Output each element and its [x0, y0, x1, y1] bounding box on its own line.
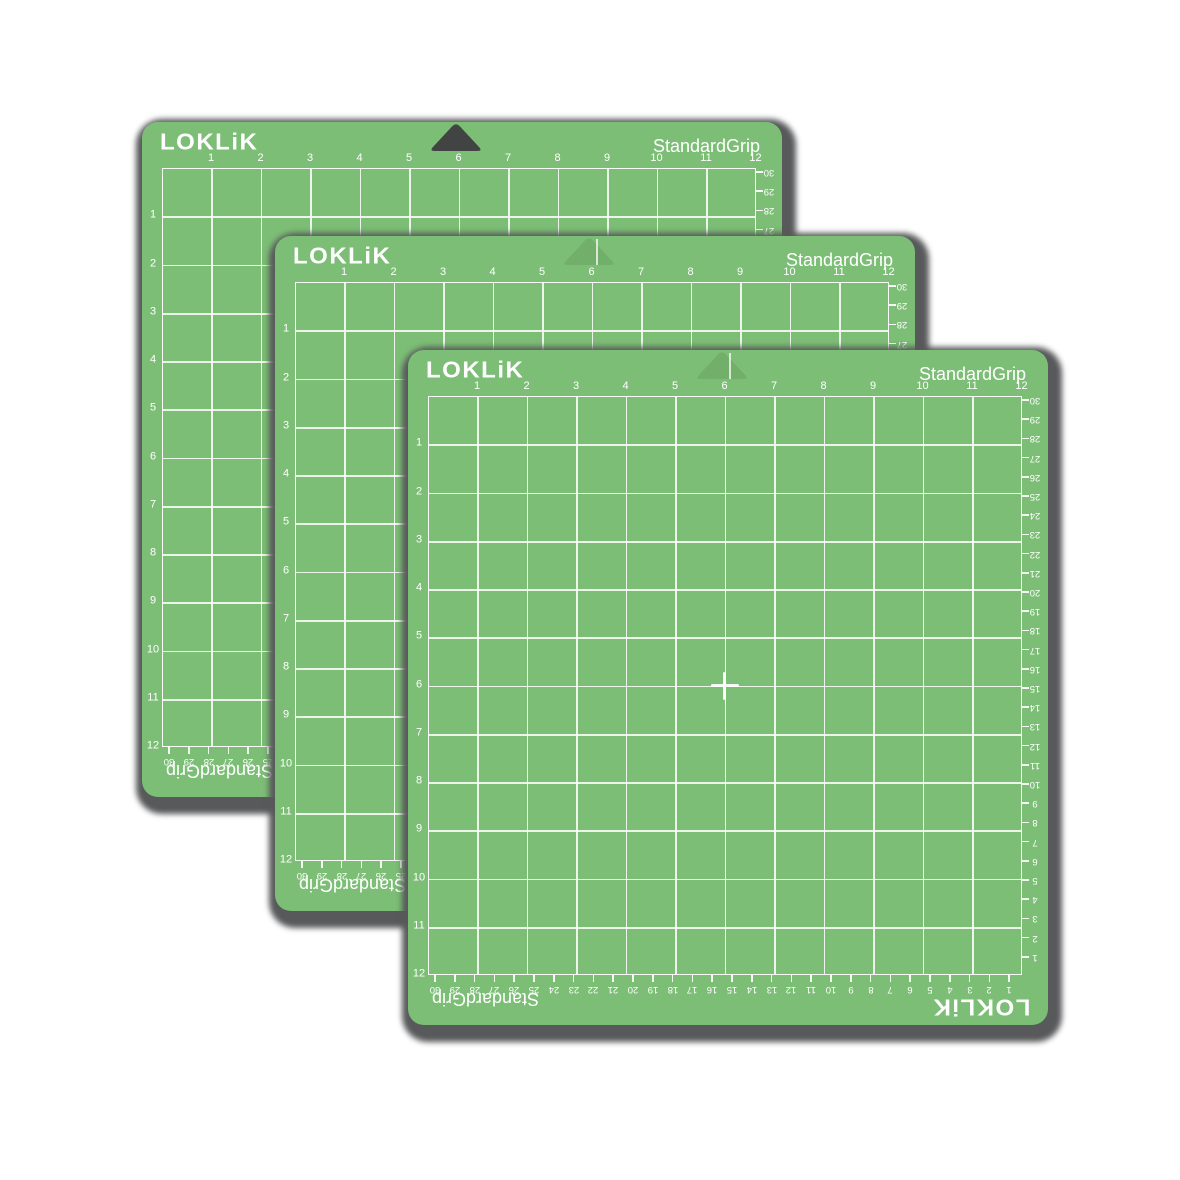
top-ruler-number: 10 — [783, 267, 795, 278]
right-ruler-number: 28 — [1029, 434, 1040, 444]
right-ruler-number: 30 — [763, 167, 774, 177]
bottom-ruler-tick — [454, 975, 456, 982]
bottom-ruler-number: 9 — [848, 984, 853, 994]
left-ruler-number: 2 — [150, 258, 156, 269]
bottom-ruler-tick — [593, 975, 595, 982]
right-ruler-number: 18 — [1029, 626, 1040, 636]
right-ruler-number: 4 — [1032, 894, 1037, 904]
left-ruler-number: 1 — [150, 210, 156, 221]
right-ruler-number: 17 — [1029, 645, 1040, 655]
right-ruler-tick — [1022, 630, 1029, 632]
grip-type-label-mirrored: StandardGrip — [299, 874, 406, 895]
top-ruler-number: 6 — [455, 153, 461, 164]
top-ruler-number: 8 — [554, 153, 560, 164]
bottom-ruler-tick — [929, 975, 931, 982]
right-ruler-number: 24 — [1029, 510, 1040, 520]
bottom-ruler-tick — [228, 747, 230, 754]
right-ruler-tick — [1022, 764, 1029, 766]
bottom-ruler-tick — [890, 975, 892, 982]
top-ruler-number: 3 — [307, 153, 313, 164]
bottom-ruler-tick — [494, 975, 496, 982]
left-ruler-number: 1 — [416, 438, 422, 449]
bottom-ruler-tick — [434, 975, 436, 982]
left-ruler-number: 5 — [150, 403, 156, 414]
right-ruler-tick — [1022, 860, 1029, 862]
grip-type-label-mirrored: StandardGrip — [432, 988, 539, 1009]
right-ruler-number: 26 — [1029, 472, 1040, 482]
top-ruler-number: 9 — [604, 153, 610, 164]
top-ruler-number: 10 — [650, 153, 662, 164]
right-ruler-tick — [1022, 687, 1029, 689]
left-ruler-number: 3 — [416, 534, 422, 545]
right-ruler-tick — [1022, 745, 1029, 747]
left-ruler-number: 11 — [413, 920, 424, 931]
right-ruler-tick — [1022, 918, 1029, 920]
bottom-ruler-tick — [247, 747, 249, 754]
right-ruler-tick — [1022, 572, 1029, 574]
top-ruler-number: 12 — [1015, 381, 1027, 392]
bottom-ruler-tick — [632, 975, 634, 982]
left-ruler-number: 6 — [416, 679, 422, 690]
bottom-ruler-number: 22 — [588, 984, 599, 994]
hanging-notch-cutout-icon — [427, 121, 485, 152]
hanging-notch-cutout-icon — [693, 349, 751, 380]
left-ruler-number: 8 — [416, 775, 422, 786]
bottom-ruler-tick — [791, 975, 793, 982]
top-ruler-number: 12 — [882, 267, 894, 278]
right-ruler-number: 1 — [1032, 952, 1037, 962]
top-ruler-number: 2 — [390, 267, 396, 278]
right-ruler-tick — [1022, 610, 1029, 612]
bottom-ruler-number: 19 — [648, 984, 659, 994]
right-ruler-tick — [756, 171, 763, 173]
bottom-ruler-tick — [652, 975, 654, 982]
right-ruler-tick — [1022, 841, 1029, 843]
top-ruler-number: 12 — [749, 153, 761, 164]
bottom-ruler-tick — [267, 747, 269, 754]
bottom-ruler-tick — [731, 975, 733, 982]
bottom-ruler-tick — [341, 861, 343, 868]
right-ruler-number: 23 — [1029, 530, 1040, 540]
bottom-ruler-number: 12 — [786, 984, 797, 994]
bottom-ruler-tick — [989, 975, 991, 982]
bottom-ruler-tick — [949, 975, 951, 982]
bottom-ruler-tick — [771, 975, 773, 982]
top-ruler-number: 9 — [737, 267, 743, 278]
top-ruler-number: 11 — [700, 153, 711, 164]
grip-type-label-mirrored: StandardGrip — [166, 760, 273, 781]
cutting-mat: LOKLiK StandardGrip 123456789101112 1234… — [408, 350, 1048, 1025]
top-ruler-number: 11 — [833, 267, 844, 278]
right-ruler-number: 19 — [1029, 606, 1040, 616]
right-ruler-tick — [1022, 534, 1029, 536]
grid-line-horizontal — [429, 879, 1021, 881]
top-ruler-number: 3 — [440, 267, 446, 278]
left-ruler-number: 9 — [416, 824, 422, 835]
right-ruler-tick — [1022, 956, 1029, 958]
right-ruler-tick — [1022, 937, 1029, 939]
left-ruler-number: 7 — [150, 499, 156, 510]
right-ruler-number: 8 — [1032, 818, 1037, 828]
left-ruler-number: 2 — [416, 486, 422, 497]
top-ruler-number: 2 — [523, 381, 529, 392]
right-ruler-number: 30 — [1029, 395, 1040, 405]
right-ruler-number: 21 — [1029, 568, 1040, 578]
bottom-ruler-tick — [612, 975, 614, 982]
bottom-ruler-tick — [553, 975, 555, 982]
hanging-notch-cutout-icon — [560, 235, 618, 266]
right-ruler-tick — [1022, 726, 1029, 728]
right-ruler-tick — [1022, 783, 1029, 785]
left-ruler-number: 8 — [150, 547, 156, 558]
right-ruler-number: 29 — [763, 186, 774, 196]
top-ruler-number: 4 — [489, 267, 495, 278]
right-ruler-tick — [1022, 457, 1029, 459]
top-ruler-number: 7 — [771, 381, 777, 392]
right-ruler-number: 30 — [896, 281, 907, 291]
grid-line-horizontal — [163, 216, 755, 218]
top-ruler-number: 8 — [820, 381, 826, 392]
left-ruler-number: 10 — [280, 758, 292, 769]
grid-line-horizontal — [429, 493, 1021, 495]
right-ruler-tick — [756, 229, 763, 231]
right-ruler-number: 3 — [1032, 914, 1037, 924]
bottom-ruler-tick — [969, 975, 971, 982]
bottom-ruler-number: 17 — [687, 984, 698, 994]
left-ruler-number: 10 — [147, 644, 159, 655]
left-ruler-number: 1 — [283, 324, 289, 335]
bottom-ruler-number: 15 — [727, 984, 738, 994]
bottom-ruler-tick — [321, 861, 323, 868]
left-ruler-number: 12 — [147, 740, 159, 751]
top-ruler-number: 3 — [573, 381, 579, 392]
right-ruler-number: 29 — [896, 300, 907, 310]
bottom-ruler-number: 13 — [766, 984, 777, 994]
bottom-ruler-number: 14 — [747, 984, 758, 994]
right-ruler-number: 5 — [1032, 875, 1037, 885]
left-ruler-number: 4 — [416, 582, 422, 593]
bottom-ruler-tick — [474, 975, 476, 982]
bottom-ruler-number: 8 — [868, 984, 873, 994]
right-ruler-number: 16 — [1029, 664, 1040, 674]
right-ruler-tick — [1022, 898, 1029, 900]
right-ruler-tick — [889, 324, 896, 326]
right-ruler-number: 27 — [763, 225, 774, 235]
grid-line-horizontal — [429, 541, 1021, 543]
bottom-ruler-tick — [208, 747, 210, 754]
bottom-ruler-number: 7 — [888, 984, 893, 994]
right-ruler-number: 6 — [1032, 856, 1037, 866]
bottom-ruler-number: 21 — [608, 984, 619, 994]
right-ruler-tick — [889, 304, 896, 306]
bottom-ruler-tick — [870, 975, 872, 982]
right-ruler-tick — [1022, 438, 1029, 440]
bottom-ruler-tick — [830, 975, 832, 982]
right-ruler-tick — [1022, 802, 1029, 804]
bottom-ruler-tick — [533, 975, 535, 982]
bottom-ruler-tick — [188, 747, 190, 754]
left-ruler-number: 11 — [147, 692, 158, 703]
left-ruler-number: 2 — [283, 372, 289, 383]
top-ruler-number: 5 — [539, 267, 545, 278]
right-ruler-tick — [1022, 879, 1029, 881]
left-ruler-number: 10 — [413, 872, 425, 883]
right-ruler-tick — [1022, 668, 1029, 670]
right-ruler-number: 2 — [1032, 933, 1037, 943]
top-ruler-number: 4 — [622, 381, 628, 392]
top-ruler-number: 5 — [672, 381, 678, 392]
brand-logo-mirrored: LOKLiK — [932, 993, 1030, 1020]
right-ruler-number: 20 — [1029, 587, 1040, 597]
top-ruler-number: 11 — [966, 381, 977, 392]
bottom-ruler-number: 11 — [806, 984, 816, 994]
grid-line-horizontal — [429, 589, 1021, 591]
left-ruler-number: 3 — [150, 306, 156, 317]
bottom-ruler-tick — [301, 861, 303, 868]
grid-line-horizontal — [429, 782, 1021, 784]
right-ruler-number: 13 — [1029, 722, 1040, 732]
top-ruler-number: 7 — [638, 267, 644, 278]
bottom-ruler-tick — [810, 975, 812, 982]
grid-line-horizontal — [296, 330, 888, 332]
right-ruler-number: 22 — [1029, 549, 1040, 559]
grid-line-horizontal — [429, 927, 1021, 929]
right-ruler-number: 9 — [1032, 798, 1037, 808]
left-ruler-number: 4 — [150, 354, 156, 365]
bottom-ruler-tick — [361, 861, 363, 868]
top-ruler-number: 6 — [721, 381, 727, 392]
left-ruler-number: 7 — [416, 727, 422, 738]
top-ruler-number: 7 — [505, 153, 511, 164]
right-ruler-tick — [1022, 476, 1029, 478]
bottom-ruler-tick — [711, 975, 713, 982]
left-ruler-number: 6 — [150, 451, 156, 462]
right-ruler-number: 28 — [896, 320, 907, 330]
right-ruler-tick — [1022, 822, 1029, 824]
left-ruler-number: 12 — [413, 968, 425, 979]
bottom-ruler-number: 23 — [568, 984, 579, 994]
grid-line-horizontal — [429, 734, 1021, 736]
right-ruler-tick — [1022, 553, 1029, 555]
right-ruler-tick — [1022, 418, 1029, 420]
right-ruler-tick — [889, 343, 896, 345]
left-ruler-number: 12 — [280, 854, 292, 865]
left-ruler-number: 3 — [283, 420, 289, 431]
top-ruler-number: 5 — [406, 153, 412, 164]
top-ruler-number: 1 — [208, 153, 214, 164]
right-ruler-number: 12 — [1029, 741, 1040, 751]
bottom-ruler-tick — [380, 861, 382, 868]
bottom-ruler-number: 10 — [826, 984, 837, 994]
right-ruler-number: 27 — [1029, 453, 1040, 463]
right-ruler-tick — [1022, 399, 1029, 401]
right-ruler-number: 10 — [1029, 779, 1040, 789]
right-ruler-tick — [756, 210, 763, 212]
bottom-ruler-number: 18 — [667, 984, 678, 994]
grid-line-horizontal — [429, 830, 1021, 832]
bottom-ruler-number: 20 — [628, 984, 639, 994]
right-ruler-number: 7 — [1032, 837, 1037, 847]
bottom-ruler-number: 24 — [549, 984, 560, 994]
loklik-standardgrip-mats-product-image: LOKLiK StandardGrip 123456789101112 1234… — [0, 0, 1180, 1180]
bottom-ruler-tick — [1008, 975, 1010, 982]
bottom-ruler-tick — [400, 861, 402, 868]
left-ruler-number: 5 — [283, 517, 289, 528]
right-ruler-tick — [1022, 706, 1029, 708]
top-ruler-number: 2 — [257, 153, 263, 164]
left-ruler-number: 4 — [283, 468, 289, 479]
right-ruler-number: 11 — [1030, 760, 1040, 770]
grid-line-horizontal — [429, 444, 1021, 446]
bottom-ruler-tick — [672, 975, 674, 982]
bottom-ruler-number: 6 — [908, 984, 913, 994]
bottom-ruler-tick — [513, 975, 515, 982]
right-ruler-tick — [1022, 514, 1029, 516]
right-ruler-number: 28 — [763, 206, 774, 216]
right-ruler-tick — [1022, 495, 1029, 497]
bottom-ruler-tick — [909, 975, 911, 982]
top-ruler-number: 1 — [341, 267, 347, 278]
top-ruler-number: 6 — [588, 267, 594, 278]
left-ruler-number: 5 — [416, 631, 422, 642]
left-ruler-number: 6 — [283, 565, 289, 576]
left-ruler-number: 7 — [283, 613, 289, 624]
left-ruler-number: 8 — [283, 661, 289, 672]
top-ruler-number: 10 — [916, 381, 928, 392]
right-ruler-number: 29 — [1029, 414, 1040, 424]
bottom-ruler-tick — [850, 975, 852, 982]
top-ruler-number: 9 — [870, 381, 876, 392]
right-ruler-tick — [756, 190, 763, 192]
top-ruler-number: 1 — [474, 381, 480, 392]
bottom-ruler-tick — [168, 747, 170, 754]
right-ruler-tick — [1022, 591, 1029, 593]
bottom-ruler-tick — [692, 975, 694, 982]
right-ruler-tick — [889, 285, 896, 287]
right-ruler-number: 27 — [896, 339, 907, 349]
right-ruler-number: 25 — [1029, 491, 1040, 501]
top-ruler-number: 8 — [687, 267, 693, 278]
bottom-ruler-tick — [573, 975, 575, 982]
right-ruler-number: 14 — [1029, 702, 1040, 712]
center-crosshair-icon — [711, 672, 739, 700]
bottom-ruler-tick — [751, 975, 753, 982]
right-ruler-number: 15 — [1029, 683, 1040, 693]
left-ruler-number: 11 — [280, 806, 291, 817]
top-ruler-number: 4 — [356, 153, 362, 164]
bottom-ruler-number: 16 — [707, 984, 718, 994]
grid-line-horizontal — [429, 637, 1021, 639]
left-ruler-number: 9 — [150, 596, 156, 607]
left-ruler-number: 9 — [283, 710, 289, 721]
right-ruler-tick — [1022, 649, 1029, 651]
